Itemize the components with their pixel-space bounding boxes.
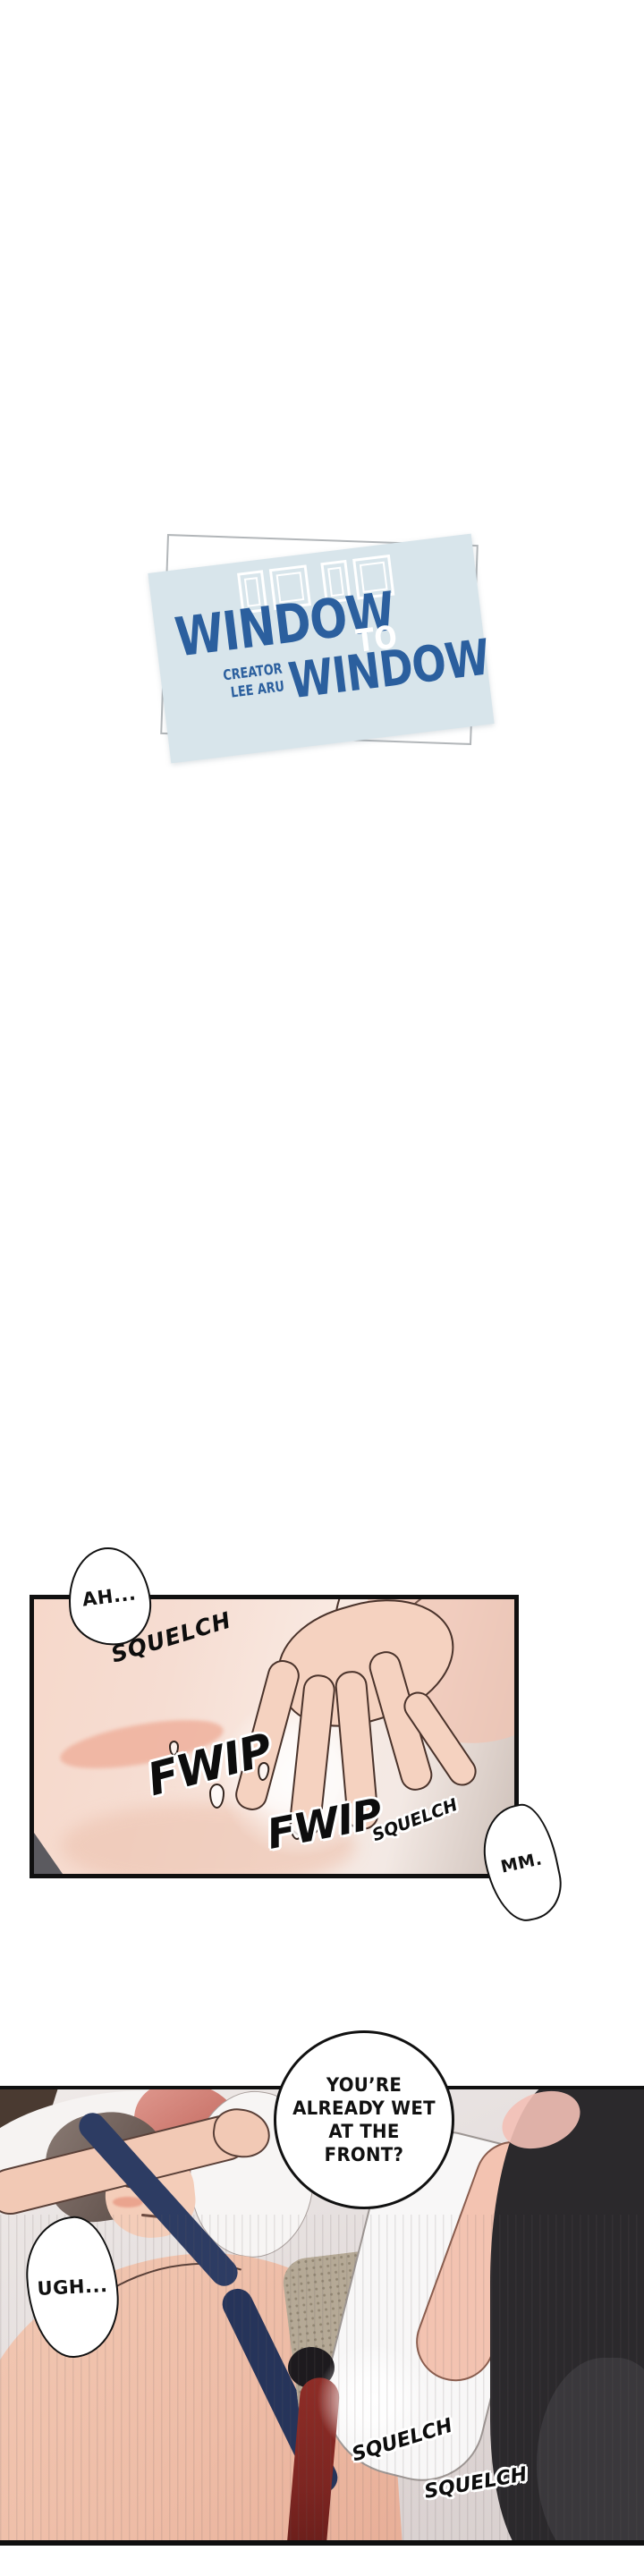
webtoon-page: WINDOW TO CREATOR LEE ARU WINDOW SQUELCH… <box>0 0 644 2576</box>
speech-text-lines: YOU’RE ALREADY WET AT THE FRONT? <box>292 2073 436 2166</box>
speech-text-line: FRONT? <box>292 2143 436 2166</box>
series-title-card: WINDOW TO CREATOR LEE ARU WINDOW <box>148 534 494 764</box>
speech-text: AH... <box>81 1582 138 1610</box>
speech-text-line: YOU’RE <box>292 2073 436 2097</box>
speech-text: MM. <box>499 1849 544 1877</box>
sfx-squelch: SQUELCH <box>370 1797 460 1845</box>
speech-text-line: ALREADY WET <box>292 2097 436 2120</box>
speech-text: UGH... <box>37 2275 108 2300</box>
speech-bubble-main: YOU’RE ALREADY WET AT THE FRONT? <box>274 2030 454 2209</box>
corner-clothing-illustration <box>34 1833 63 1874</box>
creator-credit: CREATOR LEE ARU <box>213 660 285 704</box>
speech-text-line: AT THE <box>292 2120 436 2143</box>
